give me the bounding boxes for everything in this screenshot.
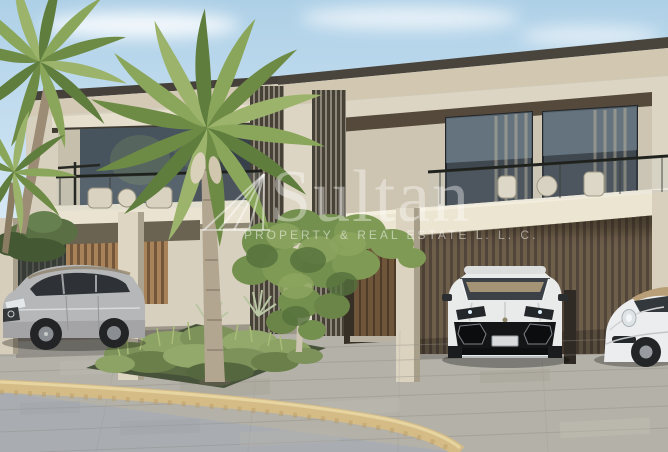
silver-suv — [2, 265, 146, 351]
right-balcony-railing — [428, 156, 668, 208]
balcony-chair — [88, 188, 112, 208]
balcony-chair — [498, 176, 516, 198]
balcony-table — [537, 176, 557, 196]
dark-post — [564, 290, 576, 364]
white-sports-car — [594, 287, 668, 367]
detail-render-layer — [0, 0, 668, 452]
grille — [3, 307, 20, 322]
balcony-chair — [584, 172, 604, 196]
villa-exterior-rendering: Sultan PROPERTY & REAL ESTATE L. L. C. — [0, 0, 668, 452]
white-suv — [442, 266, 570, 368]
